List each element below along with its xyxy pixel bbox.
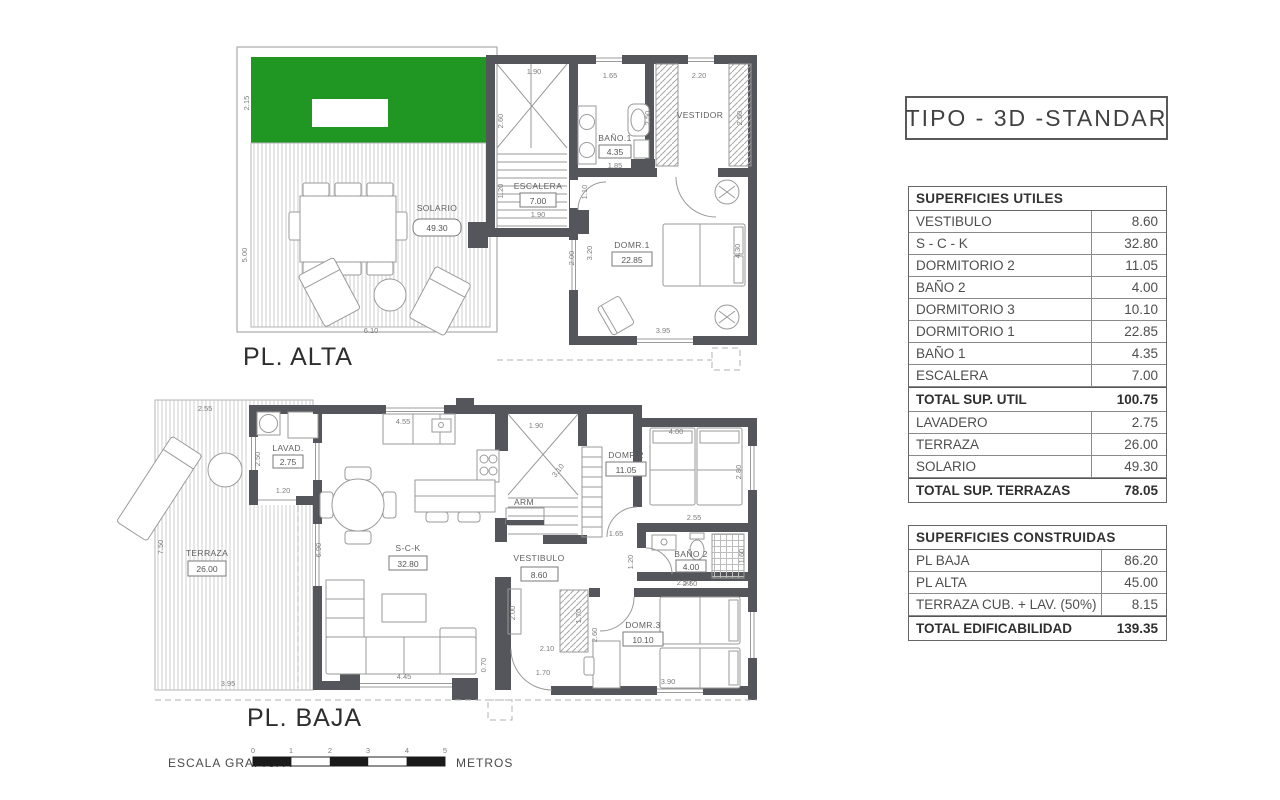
vestibulo-area: 8.60 — [531, 570, 548, 580]
desk-icon — [593, 641, 620, 688]
terraza-label: TERRAZA — [186, 548, 228, 558]
scale-tick: 4 — [405, 746, 409, 755]
plan-baja-title: PL. BAJA — [247, 704, 362, 732]
dim-solario-left: 5.00 — [240, 248, 249, 263]
dim: 2.00 — [508, 606, 517, 621]
sink-icon — [432, 419, 451, 432]
dim: 2.50 — [253, 452, 262, 467]
floorplan-sheet: 2.15 SOLARIO 49.30 5.00 6.10 — [0, 0, 1280, 800]
lavadero-label: LAVAD. — [272, 443, 303, 453]
lavadero-area: 2.75 — [280, 457, 297, 467]
dim: 1.65 — [609, 529, 624, 538]
escalera-label: ESCALERA — [514, 181, 563, 191]
table-row: DORMITORIO 310.10 — [909, 299, 1166, 321]
dim: 2.50 — [677, 578, 692, 587]
sink-icon — [580, 115, 595, 130]
sofa-icon — [326, 637, 476, 674]
table-row: BAÑO 24.00 — [909, 277, 1166, 299]
dim: 4.00 — [669, 427, 684, 436]
dim: 2.60 — [590, 628, 599, 643]
dim: 2.55 — [198, 404, 213, 413]
door-arc-vestidor — [676, 177, 716, 217]
bano1-label: BAÑO.1 — [598, 133, 632, 143]
plan-alta: 2.15 SOLARIO 49.30 5.00 6.10 — [237, 47, 757, 371]
hob-icon — [477, 450, 499, 482]
dim: 1.90 — [527, 67, 542, 76]
dining-table — [320, 467, 396, 544]
living-furniture — [326, 580, 476, 674]
dim: 2.10 — [540, 644, 555, 653]
table-total-row: TOTAL EDIFICABILIDAD139.35 — [909, 616, 1166, 640]
bano2-label: BAÑO 2 — [674, 549, 708, 559]
table-total-row: TOTAL SUP. UTIL100.75 — [909, 387, 1166, 412]
sink-icon — [652, 535, 676, 550]
dim: 7.50 — [156, 540, 165, 555]
dim: 2.50 — [643, 111, 652, 126]
sink-icon — [580, 143, 595, 158]
table-row: DORMITORIO 211.05 — [909, 255, 1166, 277]
dim: 6.90 — [314, 543, 323, 558]
table-row: PL ALTA45.00 — [909, 572, 1166, 594]
lavadero: LAVAD. 2.75 2.50 1.20 — [249, 405, 322, 505]
dim-lawn-height: 2.15 — [242, 96, 251, 111]
dim: 4.30 — [733, 244, 742, 259]
dorm2-label: DOMR.2 — [608, 450, 643, 460]
sheet-title: TIPO - 3D -STANDAR — [905, 96, 1168, 140]
scale-unit: METROS — [456, 756, 513, 770]
table-row: LAVADERO2.75 — [909, 412, 1166, 434]
alta-openings — [569, 55, 716, 345]
dim: 3.95 — [656, 326, 671, 335]
plan-baja: LAVAD. 2.75 2.50 1.20 — [116, 398, 757, 732]
table-row: TERRAZA CUB. + LAV. (50%)8.15 — [909, 594, 1166, 616]
dim: 0.70 — [479, 658, 488, 673]
dim-solario-bottom: 6.10 — [364, 326, 379, 335]
table-row: TERRAZA26.00 — [909, 434, 1166, 456]
table-row: S - C - K32.80 — [909, 233, 1166, 255]
dim: 1.90 — [531, 210, 546, 219]
dim: 2.60 — [496, 114, 505, 129]
scale-tick: 0 — [251, 746, 255, 755]
dim: 1.85 — [608, 161, 623, 170]
dorm2-area: 11.05 — [616, 465, 637, 475]
scale-tick: 5 — [443, 746, 447, 755]
scale-bar: ESCALA GRAFICA : 0 1 2 3 4 5 METROS — [168, 746, 513, 770]
dim: 3.90 — [661, 677, 676, 686]
sck-label: S-C-K — [395, 543, 420, 553]
superficies-construidas-table: SUPERFICIES CONSTRUIDAS PL BAJA86.20 PL … — [908, 525, 1167, 641]
dorm3-area: 10.10 — [632, 635, 654, 645]
dim: 2.00 — [567, 251, 576, 266]
table-row: ESCALERA7.00 — [909, 365, 1166, 387]
table-row: PL BAJA86.20 — [909, 550, 1166, 572]
dim: 4.45 — [397, 672, 412, 681]
table-header: SUPERFICIES CONSTRUIDAS — [909, 526, 1166, 550]
dim: 2.50 — [735, 111, 744, 126]
scale-tick: 3 — [366, 746, 370, 755]
side-table-icon — [208, 453, 242, 487]
dim: 4.55 — [396, 417, 411, 426]
dorm3-label: DOMR.3 — [625, 620, 660, 630]
dim: 3.10 — [550, 462, 566, 479]
coffee-table-icon — [382, 594, 426, 622]
table-total-row: TOTAL SUP. TERRAZAS78.05 — [909, 478, 1166, 502]
toilet-icon — [634, 140, 649, 158]
dim: 3.20 — [585, 246, 594, 261]
solario-area: 49.30 — [426, 223, 448, 233]
vestidor-label: VESTIDOR — [677, 110, 724, 120]
bano2-area: 4.00 — [683, 562, 700, 572]
escalera-area: 7.00 — [530, 196, 547, 206]
washing-machine-icon — [260, 415, 278, 433]
floorplans-drawing: 2.15 SOLARIO 49.30 5.00 6.10 — [0, 0, 880, 800]
dim: 1.60 — [737, 549, 746, 564]
dim: 1.20 — [626, 555, 635, 570]
dim: 2.55 — [687, 513, 702, 522]
dim: 1.20 — [496, 184, 505, 199]
table-row: SOLARIO49.30 — [909, 456, 1166, 478]
arm-label: ARM — [514, 497, 534, 507]
kitchen: 4.55 — [383, 414, 499, 522]
vestibulo-label: VESTIBULO — [513, 553, 564, 563]
dim: 2.80 — [734, 465, 743, 480]
door-arc-bano2 — [646, 548, 672, 574]
dim: 1.70 — [536, 668, 551, 677]
dim: 1.70 — [574, 609, 583, 624]
dim: 1.20 — [276, 486, 291, 495]
solario-label: SOLARIO — [417, 203, 458, 213]
dim: 2.20 — [692, 71, 707, 80]
dim: 1.90 — [529, 421, 544, 430]
dim: 1.10 — [580, 185, 589, 200]
sck-area: 32.80 — [397, 559, 419, 569]
scale-tick: 2 — [328, 746, 332, 755]
dim: 3.95 — [221, 679, 236, 688]
plan-alta-title: PL. ALTA — [243, 343, 353, 371]
table-row: BAÑO 14.35 — [909, 343, 1166, 365]
roof-lawn-opening — [312, 99, 388, 127]
dorm2: 1.65 4.00 2.80 DOMR.2 11.05 — [606, 427, 743, 538]
table-header: SUPERFICIES UTILES — [909, 187, 1166, 211]
scale-tick: 1 — [289, 746, 293, 755]
bano1-area: 4.35 — [607, 147, 624, 157]
sheet-title-text: TIPO - 3D -STANDAR — [906, 105, 1168, 132]
table-row: VESTIBULO8.60 — [909, 211, 1166, 233]
terraza-area: 26.00 — [196, 564, 218, 574]
outdoor-dining-set — [289, 183, 407, 275]
wardrobe-left — [656, 64, 678, 166]
table-row: DORMITORIO 122.85 — [909, 321, 1166, 343]
dorm1-label: DOMR.1 — [614, 240, 649, 250]
dorm1-area: 22.85 — [621, 255, 643, 265]
dim: 1.65 — [603, 71, 618, 80]
superficies-utiles-table: SUPERFICIES UTILES VESTIBULO8.60 S - C -… — [908, 186, 1167, 503]
